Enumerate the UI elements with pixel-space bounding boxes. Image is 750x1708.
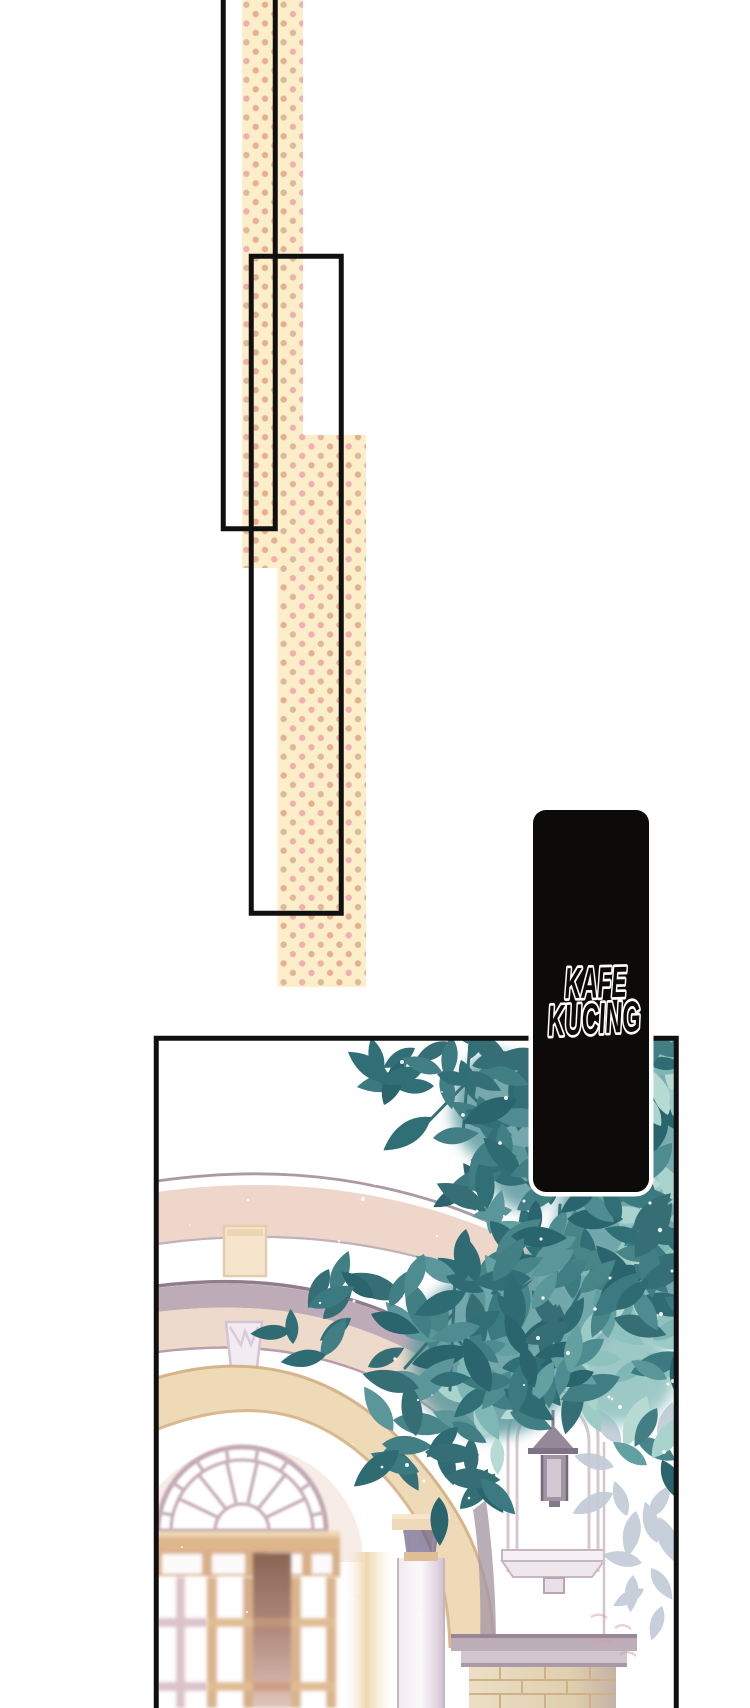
svg-text:KUCING: KUCING bbox=[546, 993, 641, 1046]
